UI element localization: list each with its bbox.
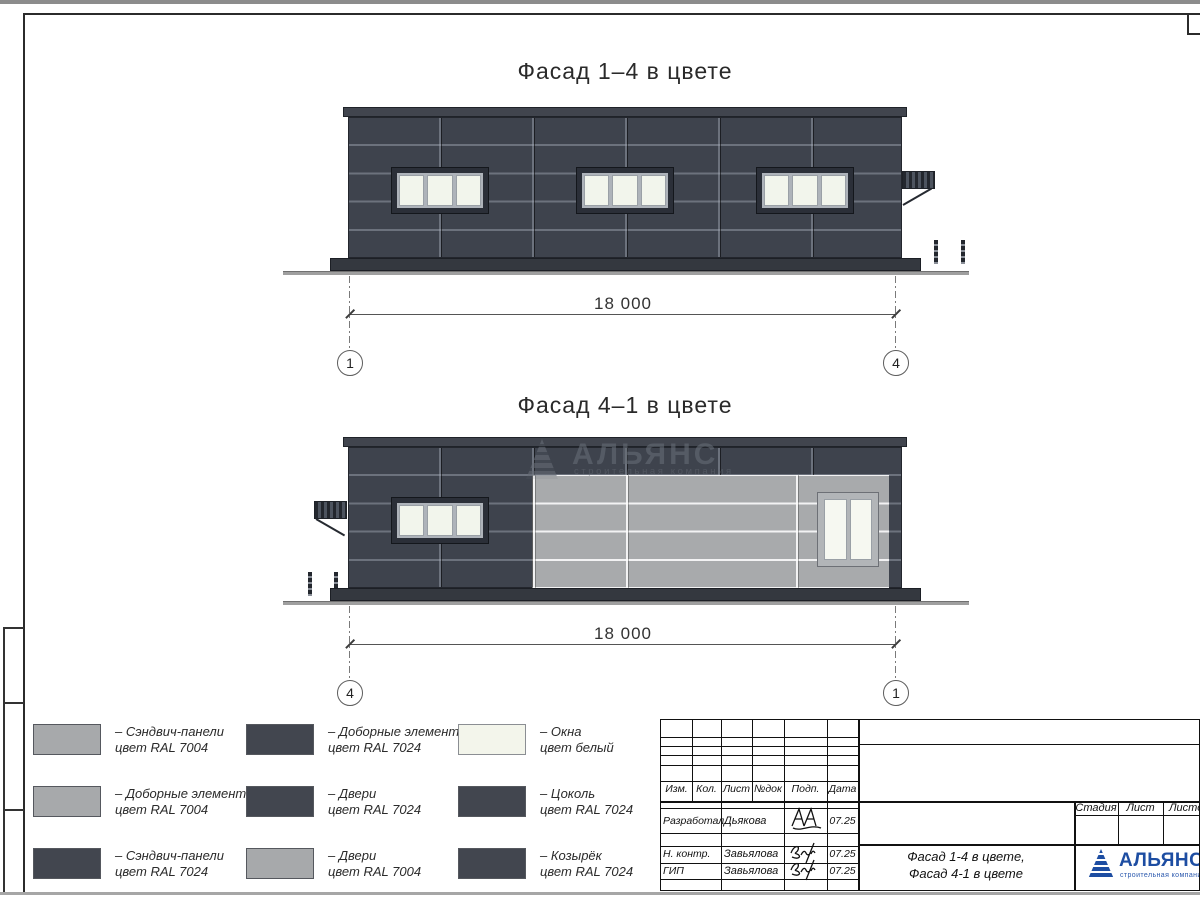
downpipe [961,240,965,264]
axis-marker: 4 [337,680,363,706]
company-subtitle: строительная компания [1120,872,1200,879]
window-pane [821,175,846,206]
dimension-value: 18 000 [573,624,673,644]
legend-swatch [458,724,526,755]
canopy [902,171,935,189]
legend-label: – Дверицвет RAL 7024 [328,786,421,818]
window-pane [612,175,637,206]
tb-role: Разработал [663,815,724,827]
plinth [330,258,921,271]
canopy [314,501,347,519]
legend-label: – Доборные элементыцвет RAL 7004 [115,786,256,818]
legend-label: – Сэндвич-панелицвет RAL 7024 [115,848,224,880]
tb-date: 07.25 [827,815,858,827]
tb-name: Завьялова [724,848,778,860]
signature [788,804,826,832]
legend-item: – Окнацвет белый [458,724,668,780]
legend-swatch [458,848,526,879]
legend-swatch [246,848,314,879]
legend-swatch [458,786,526,817]
window [757,168,853,213]
facade-top-title: Фасад 1–4 в цвете [348,58,902,85]
legend-item: – Доборные элементыцвет RAL 7024 [246,724,456,780]
tb-role: Н. контр. [663,848,710,860]
legend-label: – Доборные элементыцвет RAL 7024 [328,724,469,756]
frame-side-column [3,627,5,892]
legend-label: – Окнацвет белый [540,724,614,756]
window-pane [764,175,789,206]
legend-item: – Сэндвич-панелицвет RAL 7024 [33,848,243,900]
tb-sheets-label: Листов [1163,802,1200,814]
plinth [330,588,921,601]
legend-label: – Дверицвет RAL 7004 [328,848,421,880]
tb-header-podp: Подп. [784,783,827,795]
window-pane [399,175,424,206]
canopy-strut [903,188,933,206]
legend-item: – Дверицвет RAL 7004 [246,848,456,900]
sheet-border-top [23,13,1200,15]
legend-item: – Дверицвет RAL 7024 [246,786,456,842]
legend-label: – Козырёкцвет RAL 7024 [540,848,633,880]
frame-side-divider [3,809,24,811]
frame-side-divider [3,627,24,629]
ground-line [283,601,969,605]
canopy-strut [316,518,346,536]
downpipe [934,240,938,264]
company-name: АЛЬЯНС [1119,850,1200,872]
tb-doc-title: Фасад 1-4 в цвете, Фасад 4-1 в цвете [858,848,1074,882]
window [577,168,673,213]
axis-marker: 4 [883,350,909,376]
window-pane [792,175,817,206]
window [392,168,488,213]
legend-swatch [246,724,314,755]
legend-swatch [33,724,101,755]
tb-stage-label: Стадия [1074,802,1118,814]
sheet-border-left [23,13,25,892]
axis-marker: 1 [883,680,909,706]
tb-date: 07.25 [827,848,858,860]
window-pane [427,175,452,206]
window-pane [399,505,424,536]
legend-item: – Доборные элементыцвет RAL 7004 [33,786,243,842]
window-pane [850,499,873,560]
dimension-line [349,644,896,645]
dimension-value: 18 000 [573,294,673,314]
tb-header-ndok: №док [752,783,784,795]
sheet-border-notch [1187,15,1189,34]
window-pane [641,175,666,206]
parapet [343,107,907,117]
legend-swatch [33,786,101,817]
legend-item: – Сэндвич-панелицвет RAL 7004 [33,724,243,780]
tb-header-kol: Кол. [692,783,721,795]
tb-header-list: Лист [721,783,752,795]
window-pane [427,505,452,536]
tb-name: Завьялова [724,865,778,877]
window-pane [824,499,847,560]
window-pane [456,175,481,206]
tb-date: 07.25 [827,865,858,877]
watermark-subtitle: строительная компания [574,466,734,477]
frame-side-divider [3,702,24,704]
legend-item: – Цокольцвет RAL 7024 [458,786,668,842]
legend-swatch [33,848,101,879]
legend-item: – Козырёкцвет RAL 7024 [458,848,668,900]
tb-sheet-label: Лист [1118,802,1163,814]
axis-marker: 1 [337,350,363,376]
ground-line [283,271,969,275]
legend-label: – Сэндвич-панелицвет RAL 7004 [115,724,224,756]
window [392,498,488,543]
sheet-border-notch [1187,33,1200,35]
title-block: Изм. Кол. Лист №док Подп. Дата Разработа… [660,719,1200,891]
downpipe [308,572,312,596]
legend-label: – Цокольцвет RAL 7024 [540,786,633,818]
window-pane [584,175,609,206]
tb-header-data: Дата [827,783,858,795]
window [818,493,878,566]
tb-role: ГИП [663,865,684,877]
dimension-line [349,314,896,315]
window-pane [456,505,481,536]
legend-swatch [246,786,314,817]
viewport-top-edge [0,0,1200,4]
signature [788,858,824,882]
company-logo-triangle-icon [1088,849,1114,879]
tb-header-izm: Изм. [661,783,692,795]
drawing-sheet: Фасад 1–4 в цвете 18 000 1 4 Фасад 4–1 в… [0,0,1200,900]
tb-name: Дьякова [724,815,766,827]
legend: – Сэндвич-панелицвет RAL 7004 – Доборные… [33,722,673,892]
facade-bottom-title: Фасад 4–1 в цвете [348,392,902,419]
